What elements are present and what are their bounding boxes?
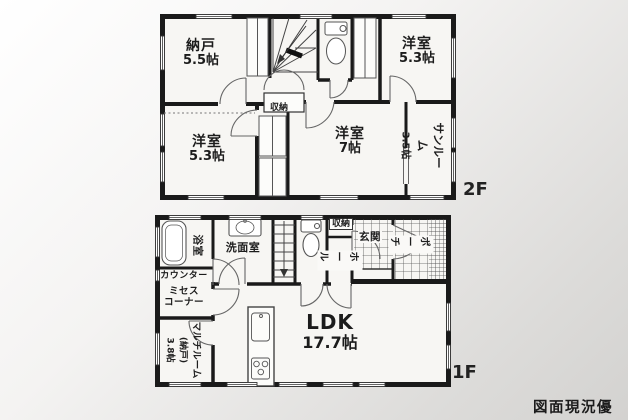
- room-label-bath: 浴室: [187, 227, 209, 263]
- room-label-mrs-corner: ミセス コーナー: [157, 287, 211, 309]
- drawing-priority-note: 図面現況優先: [533, 396, 628, 420]
- floor2-tag: 2F: [463, 179, 488, 200]
- room-label-yoshitsu-top-right: 洋室 5.3帖: [381, 36, 453, 67]
- room-label-sunroom: サンルーム 3.5帖: [398, 114, 448, 176]
- room-label-washroom: 洗面室: [215, 242, 271, 255]
- room-label-multiroom: マルチルーム (納戸) 3.8帖: [159, 319, 209, 381]
- floor1-plan: 浴室 洗面室 収納 ホール 玄関 ポーチ カウンター ミセス コーナー マルチル…: [155, 215, 451, 387]
- room-label-hall: ホール: [330, 239, 350, 281]
- closet-label-1f: 収納: [329, 218, 353, 230]
- room-label-yoshitsu-center: 洋室 7帖: [310, 126, 390, 157]
- room-label-porch: ポーチ: [402, 223, 420, 265]
- floorplan-page: 納戸 5.5帖 洋室 5.3帖 洋室 5.3帖 洋室 7帖 サンルーム 3.5帖…: [0, 0, 628, 420]
- floor1-tag: 1F: [452, 362, 477, 383]
- closet-label-2f: 収納: [270, 96, 288, 114]
- floor2-plan: 納戸 5.5帖 洋室 5.3帖 洋室 5.3帖 洋室 7帖 サンルーム 3.5帖…: [160, 14, 456, 200]
- room-label-counter: カウンター: [158, 271, 210, 281]
- room-label-yoshitsu-bottom-left: 洋室 5.3帖: [170, 134, 244, 165]
- room-label-entrance: 玄関: [358, 231, 382, 243]
- room-label-nando: 納戸 5.5帖: [165, 38, 237, 69]
- room-label-ldk: LDK 17.7帖: [285, 311, 375, 352]
